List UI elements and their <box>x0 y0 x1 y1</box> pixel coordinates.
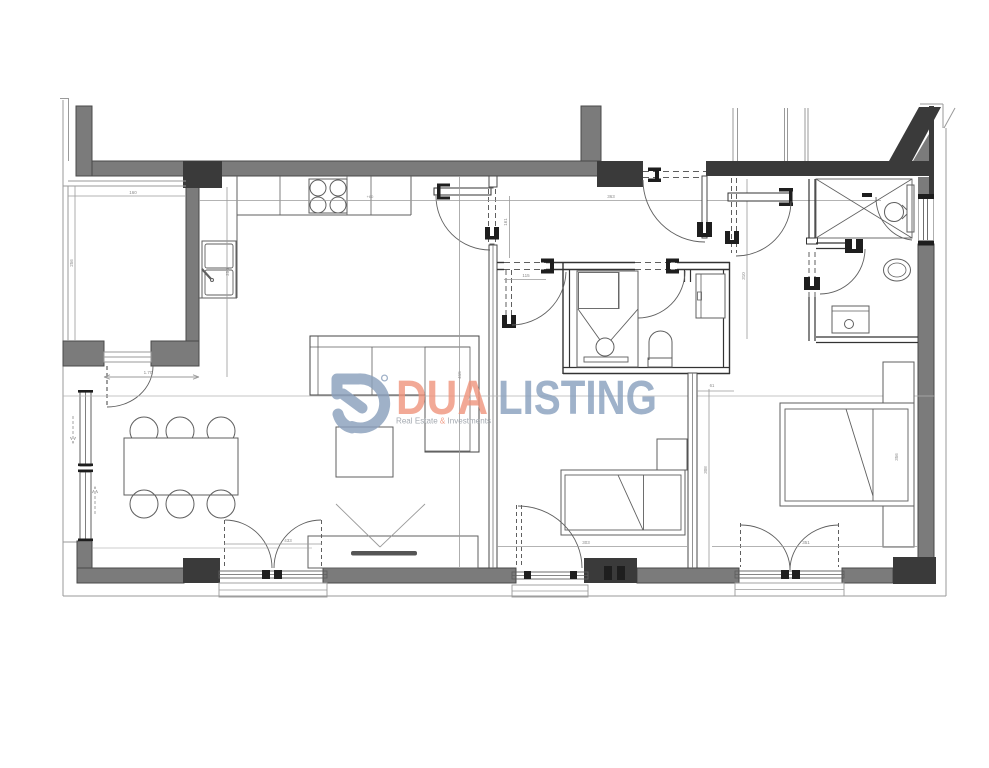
svg-text:161: 161 <box>503 218 508 226</box>
svg-text:310: 310 <box>741 272 746 280</box>
svg-text:308: 308 <box>703 466 708 474</box>
svg-text:363: 363 <box>607 194 615 199</box>
svg-text:1.70: 1.70 <box>144 370 153 375</box>
svg-text:61: 61 <box>710 383 715 388</box>
svg-text:+60: +60 <box>367 194 375 199</box>
svg-text:Real Estate & Investments: Real Estate & Investments <box>396 416 491 426</box>
svg-text:250: 250 <box>225 268 230 276</box>
svg-text:160: 160 <box>129 190 137 195</box>
svg-text:115: 115 <box>522 273 530 278</box>
svg-text:256: 256 <box>69 259 74 267</box>
svg-text:LISTING: LISTING <box>498 372 657 425</box>
svg-text:433: 433 <box>284 538 292 543</box>
svg-text:356: 356 <box>894 453 899 461</box>
svg-text:351: 351 <box>802 540 810 545</box>
svg-text:303: 303 <box>582 540 590 545</box>
